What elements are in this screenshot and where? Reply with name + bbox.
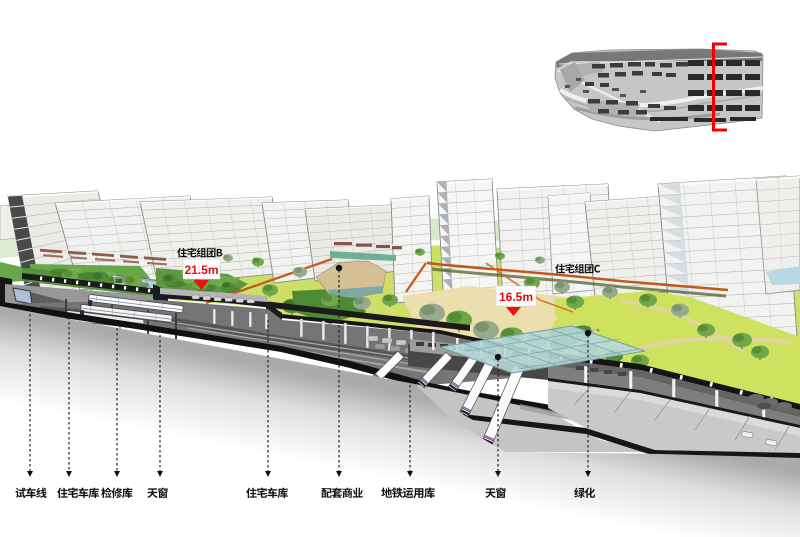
svg-text:21.5m: 21.5m (184, 263, 218, 277)
svg-text:16.5m: 16.5m (499, 290, 533, 304)
